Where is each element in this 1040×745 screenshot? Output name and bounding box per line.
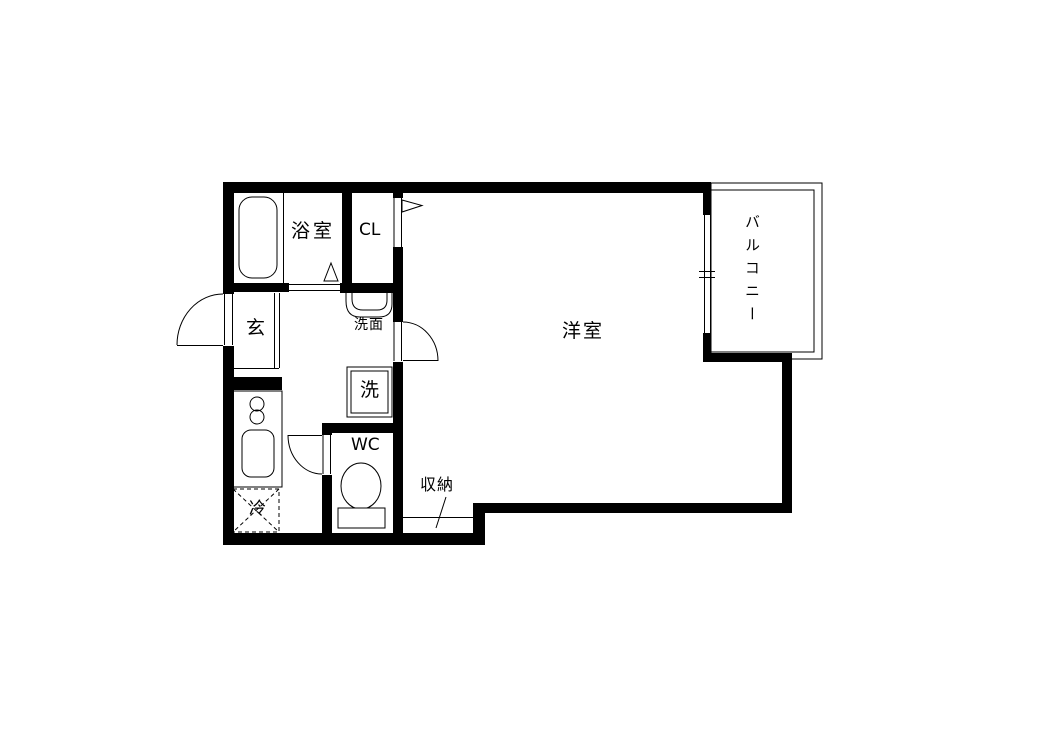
bathtub-icon [239,197,277,278]
closet-door-icon [393,198,422,247]
kitchen-sink-icon [242,430,274,477]
label-closet: CL [359,222,380,239]
balcony-rail [711,183,822,359]
kitchen-counter-icon [233,391,282,487]
label-fridge: 冷 [249,501,266,518]
washbasin-icon [346,293,392,317]
label-balcony: バルコニー [744,214,759,329]
fixtures [233,197,392,532]
label-entrance: 玄 [246,319,265,338]
wc-door-icon [288,435,332,475]
label-storage: 収納 [420,477,454,493]
label-bathroom: 浴室 [291,222,335,241]
thin-lines [234,193,473,518]
entrance-door-icon [177,294,234,346]
room-door-icon [393,322,438,362]
toilet-icon [338,463,385,528]
label-washer: 洗 [360,381,379,400]
label-washstand: 洗面 [354,318,384,332]
floor-plan-image: 浴室 CL 玄 洗面 洗 WC 冷 収納 洋室 バルコニー [0,0,1040,745]
sliding-window-icon [699,215,715,333]
folding-bath-door-icon [289,263,340,292]
label-wc: WC [351,437,380,454]
label-room: 洋室 [562,322,604,341]
stove-burner-icon [250,410,264,424]
floor-plan-linework [0,0,1040,745]
stove-burner-icon [250,397,264,411]
storage-leader-line [436,497,446,528]
